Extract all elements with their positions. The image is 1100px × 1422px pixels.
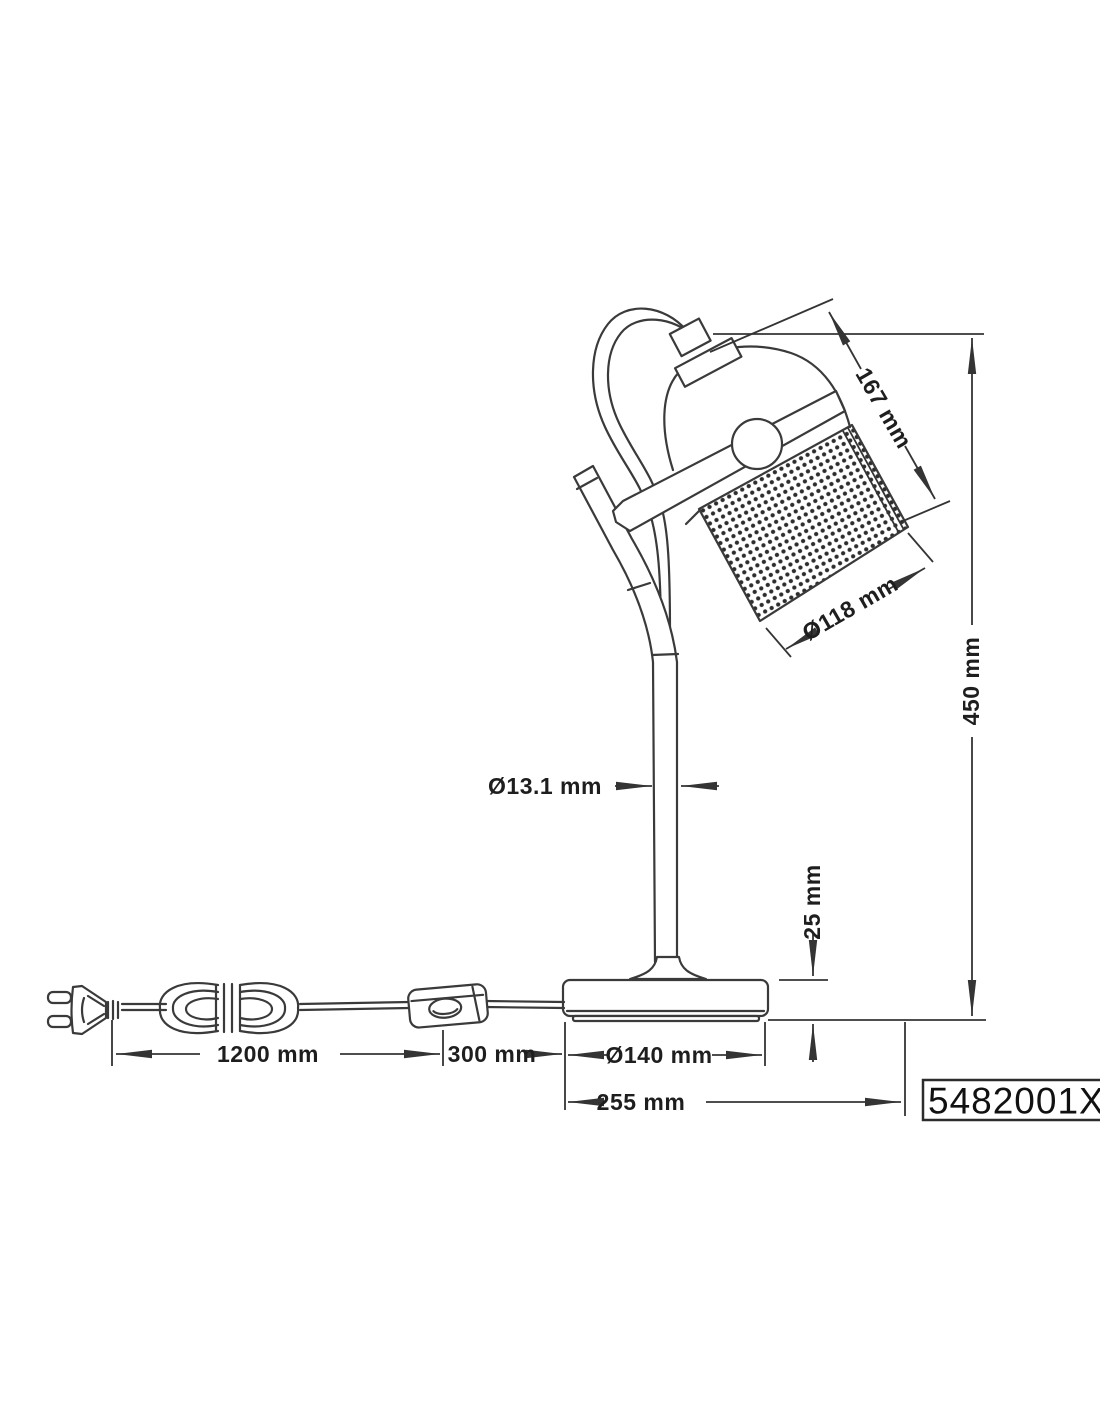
dimension-label-base-diameter: Ø140 mm bbox=[605, 1042, 712, 1068]
part-number: 5482001XX bbox=[928, 1081, 1100, 1122]
lamp-pole bbox=[574, 466, 678, 962]
power-plug bbox=[48, 986, 118, 1034]
dimension-label-switch-distance: 300 mm bbox=[448, 1041, 537, 1067]
dimension-base-diameter: Ø140 mm bbox=[568, 1042, 762, 1068]
lamp-base bbox=[563, 957, 768, 1021]
inline-switch bbox=[407, 984, 488, 1029]
dimension-label-total-height: 450 mm bbox=[958, 637, 984, 726]
dimension-label-cord-length: 1200 mm bbox=[217, 1041, 319, 1067]
cord-coil bbox=[160, 983, 298, 1033]
part-number-box: 5482001XX bbox=[923, 1080, 1100, 1122]
dimension-label-pole-diameter: Ø13.1 mm bbox=[488, 773, 602, 799]
dimension-cord-length: 1200 mm bbox=[116, 1041, 440, 1067]
cable-connector bbox=[670, 319, 742, 387]
dimension-switch-distance: 300 mm bbox=[448, 1041, 562, 1067]
lamp-dimension-diagram: 167 mm Ø118 mm 450 mm Ø13.1 mm 25 mm bbox=[0, 0, 1100, 1422]
pivot-knob bbox=[732, 419, 782, 469]
dimension-base-height: 25 mm bbox=[779, 864, 828, 1062]
dimension-pole-diameter: Ø13.1 mm bbox=[488, 773, 719, 799]
dimension-label-overall-depth: 255 mm bbox=[597, 1089, 686, 1115]
dimension-label-base-height: 25 mm bbox=[799, 864, 825, 939]
technical-drawing-page: 167 mm Ø118 mm 450 mm Ø13.1 mm 25 mm bbox=[0, 0, 1100, 1422]
dimension-overall-depth: 255 mm bbox=[568, 1089, 901, 1115]
